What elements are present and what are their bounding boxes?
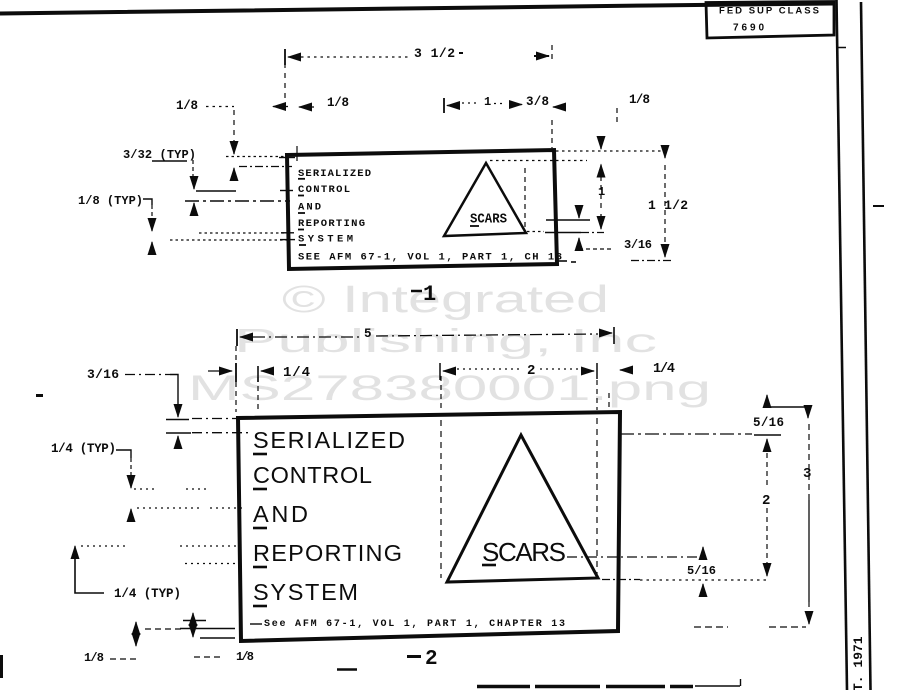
- svg-text:1/4 (TYP): 1/4 (TYP): [51, 442, 116, 456]
- svg-text:CONTROL: CONTROL: [298, 184, 350, 196]
- svg-text:See AFM 67-1, VOL 1, PART 1, C: See AFM 67-1, VOL 1, PART 1, CHAPTER 13: [264, 619, 565, 630]
- svg-text:5: 5: [364, 327, 372, 341]
- svg-text:SERIALIZED: SERIALIZED: [253, 427, 405, 453]
- svg-text:5/16: 5/16: [753, 416, 784, 430]
- svg-text:MS278380001.png: MS278380001.png: [188, 369, 711, 408]
- svg-text:REPORTING: REPORTING: [298, 218, 365, 230]
- svg-text:5/16: 5/16: [687, 564, 716, 578]
- svg-text:2: 2: [425, 648, 438, 671]
- svg-text:© Integrated: © Integrated: [282, 279, 609, 321]
- svg-text:3: 3: [803, 466, 811, 482]
- svg-text:1/4: 1/4: [283, 365, 310, 381]
- svg-text:1/8: 1/8: [176, 99, 198, 113]
- svg-text:FED SUP CLASS: FED SUP CLASS: [719, 6, 819, 17]
- svg-text:SERIALIZED: SERIALIZED: [298, 168, 371, 180]
- svg-text:1 1/2: 1 1/2: [648, 198, 688, 213]
- svg-text:1/8: 1/8: [84, 651, 104, 665]
- svg-text:2: 2: [762, 493, 770, 509]
- svg-text:1/4: 1/4: [653, 362, 675, 377]
- svg-text:1/4 (TYP): 1/4 (TYP): [114, 587, 181, 601]
- svg-text:1/8: 1/8: [629, 93, 650, 107]
- svg-text:CONTROL: CONTROL: [253, 462, 372, 488]
- svg-text:3 1/2: 3 1/2: [414, 46, 455, 61]
- svg-text:1: 1: [598, 185, 605, 199]
- svg-text:SEE AFM 67-1, VOL 1, PART 1, C: SEE AFM 67-1, VOL 1, PART 1, CH 13: [298, 252, 562, 264]
- svg-text:2: 2: [527, 363, 535, 379]
- svg-text:SYSTEM: SYSTEM: [298, 234, 353, 246]
- svg-text:AND: AND: [298, 202, 321, 214]
- svg-text:1: 1: [484, 95, 491, 109]
- svg-text:3/32 (TYP): 3/32 (TYP): [123, 148, 196, 162]
- svg-text:SCARS: SCARS: [482, 537, 566, 567]
- svg-text:T. 1971: T. 1971: [851, 636, 866, 690]
- svg-text:1: 1: [423, 282, 436, 307]
- svg-text:1/8 (TYP): 1/8 (TYP): [78, 194, 143, 208]
- svg-text:SYSTEM: SYSTEM: [253, 579, 358, 605]
- svg-text:1/8: 1/8: [236, 650, 254, 664]
- svg-text:3/8: 3/8: [526, 95, 549, 109]
- svg-text:AND: AND: [253, 501, 308, 527]
- svg-text:3/16: 3/16: [87, 367, 119, 382]
- svg-text:3/16: 3/16: [624, 238, 652, 252]
- svg-text:1/8: 1/8: [327, 96, 349, 110]
- svg-text:Publishing, Inc: Publishing, Inc: [234, 322, 657, 359]
- svg-text:REPORTING: REPORTING: [253, 540, 402, 566]
- svg-text:7690: 7690: [733, 23, 764, 34]
